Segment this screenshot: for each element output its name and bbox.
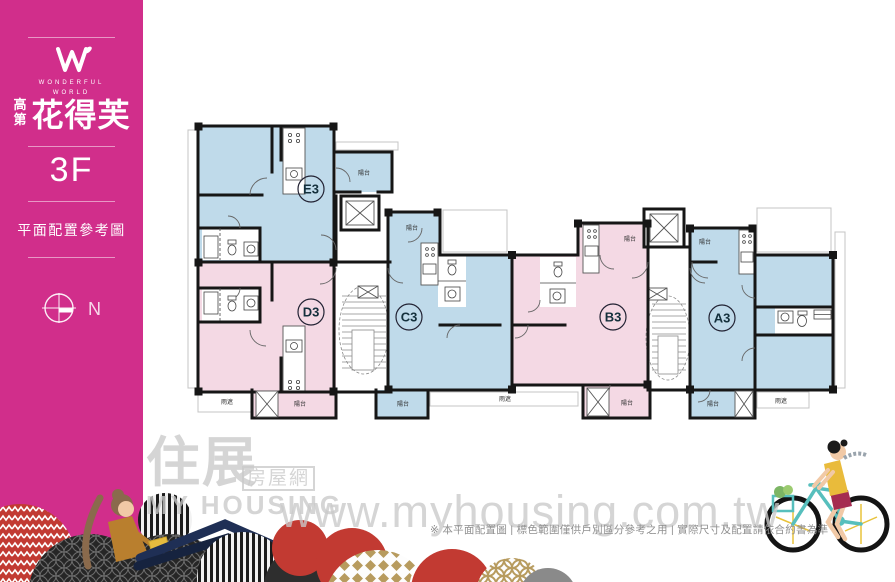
disclaimer-text: ※ 本平面配置圖 | 標色範圍僅供戶別區分參考之用 | 實際尺寸及配置請依合約書… bbox=[430, 522, 828, 537]
page: WONDERFUL WORLD 高第 花得芙 3F 平面配置參考圖 N bbox=[0, 0, 895, 582]
